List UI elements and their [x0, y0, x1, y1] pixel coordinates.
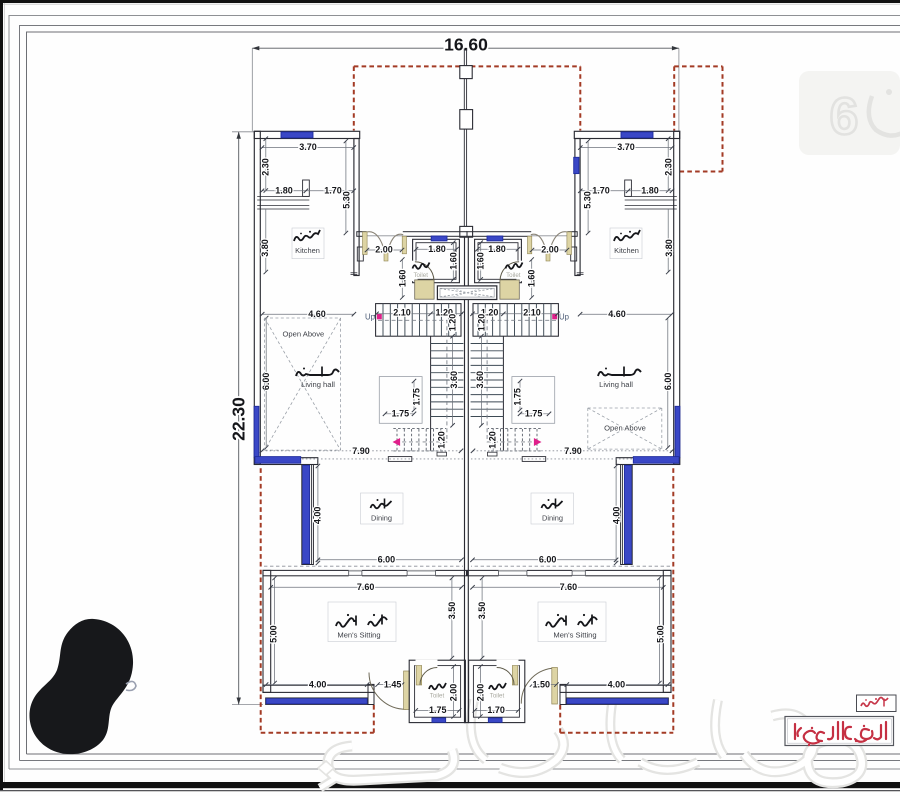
svg-text:1.60: 1.60: [476, 252, 486, 270]
svg-text:4.00: 4.00: [611, 507, 621, 525]
svg-text:Men's Sitting: Men's Sitting: [337, 631, 380, 640]
svg-text:3.50: 3.50: [447, 602, 457, 620]
svg-text:4.00: 4.00: [309, 679, 327, 689]
svg-text:4.60: 4.60: [308, 309, 326, 319]
svg-text:6.00: 6.00: [378, 554, 396, 564]
svg-text:Up: Up: [559, 312, 570, 321]
svg-text:Men's Sitting: Men's Sitting: [553, 631, 596, 640]
svg-text:2.00: 2.00: [448, 684, 458, 702]
svg-text:5.30: 5.30: [583, 191, 593, 209]
svg-text:Living hall: Living hall: [301, 380, 335, 389]
svg-text:1.70: 1.70: [487, 705, 505, 715]
svg-text:22.30: 22.30: [229, 397, 249, 441]
svg-text:6.00: 6.00: [261, 373, 271, 391]
svg-text:Toilet: Toilet: [430, 693, 445, 700]
svg-text:1.75: 1.75: [429, 705, 447, 715]
svg-text:2.00: 2.00: [541, 245, 559, 255]
svg-text:2.10: 2.10: [393, 308, 411, 318]
svg-text:1.70: 1.70: [324, 185, 342, 195]
svg-text:1.60: 1.60: [397, 270, 407, 288]
svg-text:1.50: 1.50: [533, 679, 551, 689]
svg-text:Kitchen: Kitchen: [614, 246, 639, 255]
svg-text:Toilet: Toilet: [506, 272, 521, 279]
svg-text:6.00: 6.00: [539, 554, 557, 564]
svg-text:16.60: 16.60: [444, 35, 488, 55]
svg-text:2.30: 2.30: [663, 158, 673, 176]
svg-text:Open Above: Open Above: [282, 330, 324, 339]
svg-text:2.30: 2.30: [261, 158, 271, 176]
svg-text:Living hall: Living hall: [599, 380, 633, 389]
svg-text:1.60: 1.60: [527, 270, 537, 288]
svg-text:1.20: 1.20: [437, 431, 447, 449]
svg-text:6: 6: [830, 88, 859, 146]
svg-text:7.90: 7.90: [564, 446, 582, 456]
svg-text:7.60: 7.60: [560, 582, 578, 592]
svg-text:Open Above: Open Above: [604, 424, 646, 433]
svg-text:1.80: 1.80: [428, 244, 446, 254]
svg-text:Dining: Dining: [542, 514, 563, 523]
svg-text:1.75: 1.75: [392, 409, 410, 419]
svg-text:5.30: 5.30: [341, 191, 351, 209]
svg-text:2.10: 2.10: [523, 308, 541, 318]
svg-text:Toilet: Toilet: [490, 693, 505, 700]
svg-text:5.00: 5.00: [656, 625, 666, 643]
svg-text:6.00: 6.00: [663, 373, 673, 391]
svg-text:1.80: 1.80: [488, 244, 506, 254]
svg-text:1.60: 1.60: [448, 252, 458, 270]
svg-text:3.70: 3.70: [299, 142, 317, 152]
svg-text:3.60: 3.60: [449, 371, 459, 389]
svg-text:1.70: 1.70: [592, 185, 610, 195]
svg-text:1.20: 1.20: [447, 314, 457, 332]
svg-text:7.90: 7.90: [352, 446, 370, 456]
svg-text:Dining: Dining: [371, 514, 392, 523]
svg-text:1.45: 1.45: [384, 679, 402, 689]
svg-text:4.00: 4.00: [608, 679, 626, 689]
svg-text:3.50: 3.50: [477, 602, 487, 620]
svg-text:Kitchen: Kitchen: [295, 246, 320, 255]
svg-text:5.00: 5.00: [268, 625, 278, 643]
svg-text:3.80: 3.80: [664, 239, 674, 257]
svg-text:2.00: 2.00: [476, 684, 486, 702]
svg-text:2.00: 2.00: [375, 245, 393, 255]
svg-text:1.75: 1.75: [412, 388, 422, 406]
svg-text:1.75: 1.75: [525, 409, 543, 419]
svg-text:4.60: 4.60: [608, 309, 626, 319]
svg-text:3.80: 3.80: [260, 239, 270, 257]
svg-text:3.60: 3.60: [475, 371, 485, 389]
svg-text:1.80: 1.80: [641, 185, 659, 195]
svg-text:7.60: 7.60: [357, 582, 375, 592]
svg-text:3.70: 3.70: [617, 142, 635, 152]
svg-text:Up: Up: [365, 312, 376, 321]
svg-text:Toilet: Toilet: [413, 272, 428, 279]
svg-text:4.00: 4.00: [313, 507, 323, 525]
svg-text:1.20: 1.20: [487, 431, 497, 449]
svg-text:1.80: 1.80: [275, 185, 293, 195]
svg-text:1.20: 1.20: [477, 314, 487, 332]
svg-text:1.75: 1.75: [512, 388, 522, 406]
